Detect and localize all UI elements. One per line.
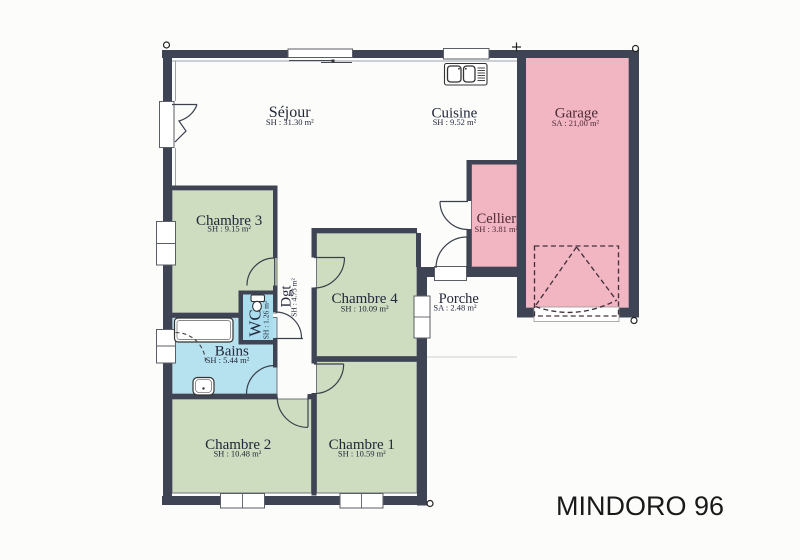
svg-text:SH : 4.73 m²: SH : 4.73 m² xyxy=(290,278,299,317)
svg-text:SH : 9.15 m²: SH : 9.15 m² xyxy=(207,224,251,234)
svg-text:SH : 10.59 m²: SH : 10.59 m² xyxy=(338,449,386,459)
svg-text:SH : 10.48 m²: SH : 10.48 m² xyxy=(213,449,261,459)
svg-text:SH : 9.52 m²: SH : 9.52 m² xyxy=(433,117,477,127)
svg-text:SH : 10.09 m²: SH : 10.09 m² xyxy=(341,304,389,314)
svg-text:SH : 1.26 m²: SH : 1.26 m² xyxy=(262,300,271,339)
svg-text:SH : 5.44 m²: SH : 5.44 m² xyxy=(206,355,250,365)
svg-text:MINDORO 96: MINDORO 96 xyxy=(556,491,724,521)
svg-text:SA : 2.48 m²: SA : 2.48 m² xyxy=(433,303,477,313)
svg-text:SH : 3.81 m²: SH : 3.81 m² xyxy=(474,224,518,234)
svg-text:SA : 21,00 m²: SA : 21,00 m² xyxy=(552,118,600,128)
svg-text:SH : 31.30 m²: SH : 31.30 m² xyxy=(266,117,314,127)
